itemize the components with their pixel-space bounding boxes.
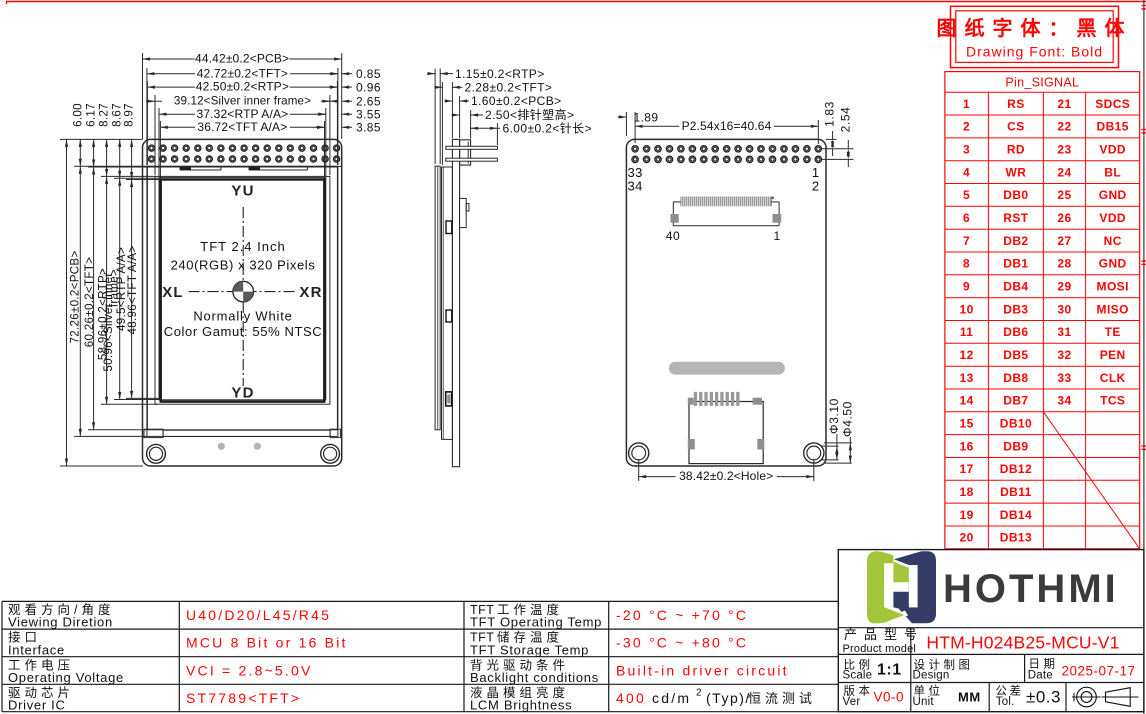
- svg-text:6: 6: [963, 211, 970, 225]
- svg-text:2: 2: [696, 688, 702, 699]
- svg-text:产品型号: 产品型号: [844, 627, 924, 642]
- svg-text:GND: GND: [1099, 188, 1127, 202]
- svg-text:DB6: DB6: [1003, 325, 1028, 339]
- svg-text:6.00: 6.00: [71, 103, 84, 127]
- svg-text:33: 33: [1057, 371, 1071, 385]
- svg-text:Ver: Ver: [843, 696, 861, 708]
- svg-text:34: 34: [628, 179, 643, 194]
- svg-text:Normally White: Normally White: [193, 309, 292, 324]
- svg-text:图纸字体：黑体: 图纸字体：黑体: [937, 16, 1133, 40]
- svg-text:DB14: DB14: [1000, 508, 1032, 522]
- svg-text:18: 18: [960, 485, 974, 499]
- svg-text:DB2: DB2: [1003, 234, 1028, 248]
- svg-text:27: 27: [1057, 234, 1071, 248]
- svg-text:32: 32: [1057, 348, 1071, 362]
- svg-text:37.32<RTP A/A>: 37.32<RTP A/A>: [197, 107, 289, 121]
- svg-text:-30 °C ~ +80 °C: -30 °C ~ +80 °C: [616, 635, 748, 651]
- svg-text:39.12<Silver inner frame>: 39.12<Silver inner frame>: [174, 95, 311, 108]
- svg-text:YU: YU: [231, 183, 254, 200]
- svg-text:±0.3: ±0.3: [1026, 688, 1061, 707]
- svg-text:RD: RD: [1007, 143, 1025, 157]
- svg-text:DB5: DB5: [1003, 348, 1028, 362]
- svg-text:Design: Design: [913, 670, 950, 682]
- svg-text:DB15: DB15: [1097, 120, 1129, 134]
- svg-text:HTM-H024B25-MCU-V1: HTM-H024B25-MCU-V1: [926, 633, 1119, 653]
- svg-text:ST7789<TFT>: ST7789<TFT>: [186, 690, 301, 706]
- svg-text:2.50<排针塑高>: 2.50<排针塑高>: [485, 107, 574, 122]
- svg-text:42.50±0.2<RTP>: 42.50±0.2<RTP>: [196, 80, 289, 94]
- svg-text:VDD: VDD: [1099, 211, 1126, 225]
- svg-text:40: 40: [666, 229, 680, 243]
- svg-text:SDCS: SDCS: [1095, 97, 1130, 111]
- svg-text:2: 2: [812, 179, 820, 194]
- svg-text:2.28±0.2<TFT>: 2.28±0.2<TFT>: [465, 81, 553, 95]
- svg-text:44.42±0.2<PCB>: 44.42±0.2<PCB>: [195, 52, 289, 66]
- svg-text:U40/D20/L45/R45: U40/D20/L45/R45: [186, 607, 331, 623]
- svg-text:17: 17: [960, 462, 974, 476]
- svg-text:DB13: DB13: [1000, 531, 1032, 545]
- svg-text:GND: GND: [1099, 257, 1127, 271]
- svg-text:LCM Brightness: LCM Brightness: [470, 698, 572, 713]
- svg-text:1:1: 1:1: [877, 662, 902, 679]
- svg-text:TCS: TCS: [1100, 394, 1125, 408]
- svg-text:Tol.: Tol.: [996, 696, 1015, 708]
- svg-text:CLK: CLK: [1100, 371, 1126, 385]
- svg-text:Φ3.10: Φ3.10: [827, 398, 841, 434]
- svg-text:Backlight conditions: Backlight conditions: [470, 670, 599, 685]
- svg-text:Drawing Font: Bold: Drawing Font: Bold: [966, 44, 1103, 60]
- svg-text:12: 12: [960, 348, 974, 362]
- svg-text:240(RGB) x 320 Pixels: 240(RGB) x 320 Pixels: [171, 258, 316, 273]
- svg-text:10: 10: [960, 302, 974, 316]
- svg-text:30: 30: [1057, 302, 1071, 316]
- svg-text:Pin_SIGNAL: Pin_SIGNAL: [1005, 76, 1079, 90]
- svg-text:3.55: 3.55: [356, 107, 381, 121]
- svg-text:DB3: DB3: [1003, 302, 1028, 316]
- svg-text:MOSI: MOSI: [1097, 280, 1129, 294]
- svg-text:2.54: 2.54: [838, 107, 852, 133]
- svg-text:XR: XR: [299, 284, 322, 301]
- svg-text:BL: BL: [1104, 165, 1121, 179]
- svg-text:DB9: DB9: [1003, 439, 1028, 453]
- svg-text:TFT Storage Temp: TFT Storage Temp: [470, 642, 589, 657]
- svg-text:Φ4.50: Φ4.50: [840, 401, 854, 437]
- svg-text:20: 20: [960, 531, 974, 545]
- svg-text:1.60±0.2<PCB>: 1.60±0.2<PCB>: [471, 94, 562, 108]
- svg-text:5: 5: [963, 188, 970, 202]
- svg-text:6.00±0.2<针长>: 6.00±0.2<针长>: [503, 121, 592, 136]
- svg-text:RS: RS: [1007, 97, 1024, 111]
- svg-text:42.72±0.2<TFT>: 42.72±0.2<TFT>: [197, 66, 288, 80]
- svg-text:Viewing Diretion: Viewing Diretion: [8, 615, 113, 630]
- svg-text:MISO: MISO: [1097, 302, 1129, 316]
- svg-text:TFT Operating Temp: TFT Operating Temp: [470, 615, 602, 630]
- svg-text:(Typ)/: (Typ)/: [706, 690, 751, 706]
- svg-text:36.72<TFT A/A>: 36.72<TFT A/A>: [197, 120, 287, 134]
- svg-text:DB4: DB4: [1003, 280, 1028, 294]
- svg-text:26: 26: [1057, 211, 1071, 225]
- svg-text:9: 9: [963, 280, 970, 294]
- svg-text:24: 24: [1057, 165, 1071, 179]
- svg-text:-20 °C ~ +70 °C: -20 °C ~ +70 °C: [616, 607, 748, 623]
- svg-text:Operating Voltage: Operating Voltage: [8, 670, 124, 685]
- svg-text:YD: YD: [231, 385, 254, 402]
- svg-text:48.96<TFT A/A>: 48.96<TFT A/A>: [126, 245, 139, 334]
- svg-text:DB0: DB0: [1003, 188, 1028, 202]
- svg-text:1: 1: [773, 229, 780, 243]
- svg-text:13: 13: [960, 371, 974, 385]
- svg-text:TFT 2.4 Inch: TFT 2.4 Inch: [200, 239, 285, 254]
- svg-text:DB11: DB11: [1000, 485, 1032, 499]
- svg-text:RST: RST: [1003, 211, 1028, 225]
- svg-text:1.15±0.2<RTP>: 1.15±0.2<RTP>: [455, 67, 545, 81]
- svg-text:2025-07-17: 2025-07-17: [1062, 664, 1136, 679]
- svg-text:1.89: 1.89: [634, 111, 659, 125]
- svg-text:15: 15: [960, 417, 974, 431]
- svg-text:0.96: 0.96: [356, 80, 381, 94]
- svg-text:25: 25: [1057, 188, 1071, 202]
- svg-text:19: 19: [960, 508, 974, 522]
- svg-text:23: 23: [1057, 143, 1071, 157]
- svg-text:3: 3: [963, 143, 970, 157]
- svg-text:34: 34: [1057, 394, 1071, 408]
- svg-text:Product model: Product model: [843, 643, 917, 655]
- svg-text:Scale: Scale: [843, 670, 873, 682]
- svg-text:7: 7: [963, 234, 970, 248]
- svg-text:V0-0: V0-0: [874, 690, 905, 705]
- svg-text:11: 11: [960, 325, 974, 339]
- svg-text:14: 14: [960, 394, 974, 408]
- svg-text:DB8: DB8: [1003, 371, 1028, 385]
- svg-text:3.85: 3.85: [356, 121, 381, 135]
- svg-text:Color Gamut: 55% NTSC: Color Gamut: 55% NTSC: [164, 324, 323, 339]
- svg-text:DB1: DB1: [1003, 257, 1028, 271]
- svg-text:8.27: 8.27: [98, 103, 111, 127]
- svg-text:0.85: 0.85: [356, 67, 381, 81]
- svg-text:VDD: VDD: [1099, 143, 1126, 157]
- svg-text:CS: CS: [1007, 120, 1024, 134]
- svg-text:Driver IC: Driver IC: [8, 698, 66, 713]
- svg-text:1.83: 1.83: [823, 101, 837, 127]
- svg-text:Interface: Interface: [8, 642, 65, 657]
- svg-text:8.97: 8.97: [123, 103, 136, 127]
- svg-text:DB7: DB7: [1003, 394, 1028, 408]
- svg-text:21: 21: [1057, 97, 1071, 111]
- svg-text:22: 22: [1057, 120, 1071, 134]
- svg-text:TE: TE: [1105, 325, 1121, 339]
- svg-text:DB12: DB12: [1000, 462, 1032, 476]
- svg-text:29: 29: [1057, 280, 1071, 294]
- svg-text:NC: NC: [1104, 234, 1122, 248]
- svg-text:PEN: PEN: [1100, 348, 1126, 362]
- svg-text:P2.54x16=40.64: P2.54x16=40.64: [682, 119, 772, 133]
- svg-text:1: 1: [963, 97, 970, 111]
- svg-text:6.17: 6.17: [85, 103, 98, 127]
- svg-text:MM: MM: [958, 690, 981, 705]
- svg-text:Date: Date: [1028, 670, 1053, 682]
- svg-text:60.26±0.2<TFT>: 60.26±0.2<TFT>: [83, 257, 96, 347]
- svg-text:2: 2: [963, 120, 970, 134]
- svg-text:8: 8: [963, 257, 970, 271]
- svg-text:MCU 8 Bit or 16 Bit: MCU 8 Bit or 16 Bit: [186, 635, 348, 651]
- svg-text:WR: WR: [1006, 165, 1027, 179]
- svg-text:4: 4: [963, 165, 970, 179]
- svg-text:38.42±0.2<Hole>: 38.42±0.2<Hole>: [679, 469, 773, 483]
- svg-text:VCI = 2.8~5.0V: VCI = 2.8~5.0V: [186, 662, 313, 678]
- svg-text:Built-in driver circuit: Built-in driver circuit: [616, 662, 789, 678]
- svg-text:28: 28: [1057, 257, 1071, 271]
- svg-text:恒流测试: 恒流测试: [748, 691, 816, 706]
- svg-text:XL: XL: [162, 284, 184, 301]
- svg-text:DB10: DB10: [1000, 417, 1032, 431]
- svg-text:16: 16: [960, 439, 974, 453]
- svg-text:72.26±0.2<PCB>: 72.26±0.2<PCB>: [69, 250, 82, 343]
- svg-text:Unit: Unit: [913, 696, 935, 708]
- svg-text:HOTHMI: HOTHMI: [943, 567, 1119, 611]
- svg-text:400 cd/m: 400 cd/m: [616, 690, 691, 706]
- svg-text:2.65: 2.65: [356, 94, 381, 108]
- svg-text:31: 31: [1057, 325, 1071, 339]
